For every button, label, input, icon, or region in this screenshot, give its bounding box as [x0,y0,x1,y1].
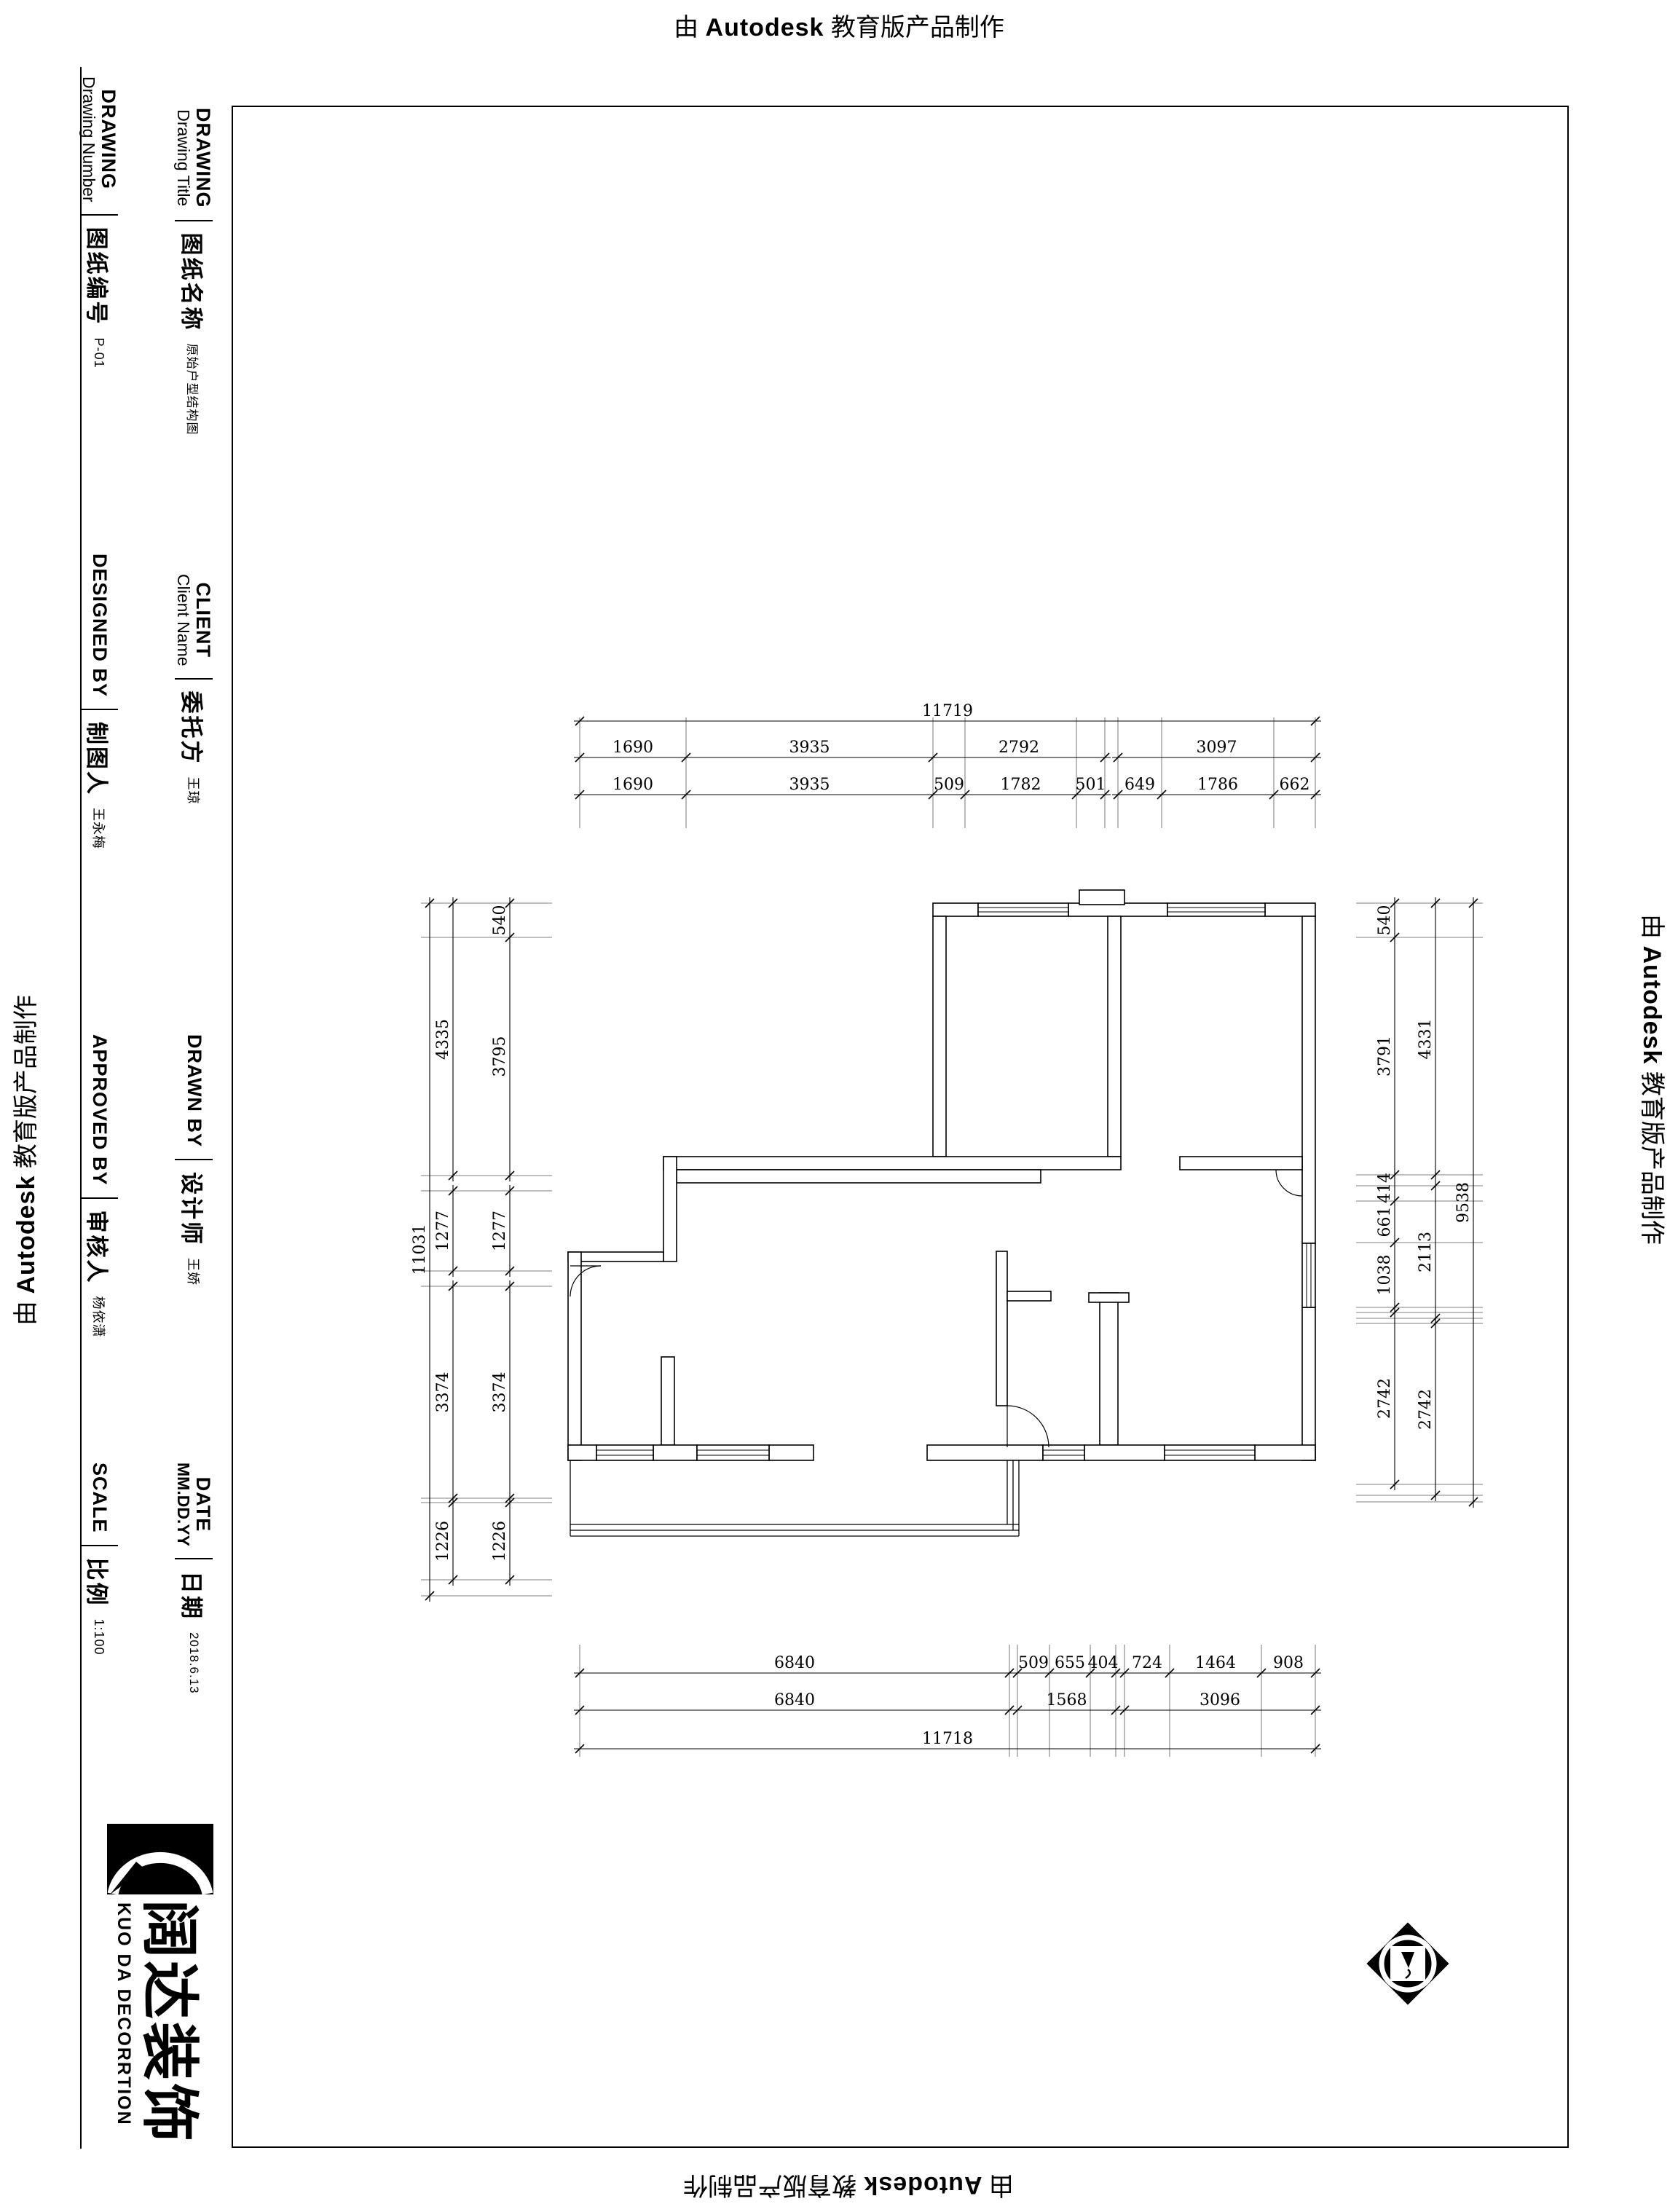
dim-label: 649 [1124,776,1155,794]
drawing-sheet: 由 Autodesk 教育版产品制作 由 Autodesk 教育版产品制作 由 … [0,0,1678,2212]
dim-label: 1226 [434,1521,452,1562]
wall [927,1445,1043,1460]
dim-label: 1277 [491,1211,509,1251]
dim-label: 540 [491,905,509,936]
dim-label: 662 [1280,776,1310,794]
dim-label: 3935 [789,776,830,794]
wall [568,1445,596,1460]
door-swing [1276,1170,1302,1196]
dim-label: 11719 [922,702,973,720]
wall [1302,1307,1315,1460]
wall [568,1252,581,1460]
window-symbol [1167,903,1265,916]
wall [677,1170,1041,1183]
dim-label: 6840 [774,1691,815,1709]
dim-label: 11718 [922,1730,973,1748]
wall [1084,1445,1165,1460]
window-symbol [596,1445,653,1460]
window-symbol [1302,1243,1315,1307]
dim-label: 661 [1376,1207,1394,1237]
dim-label: 509 [1018,1654,1049,1672]
door-swing [1007,1406,1049,1447]
dim-label: 2742 [1376,1378,1394,1419]
floor-plan: 1171916903935279230971690393550917825016… [0,0,1678,2212]
dim-label: 1690 [612,776,653,794]
dim-label: 509 [934,776,964,794]
wall [933,903,978,916]
north-arrow-icon [1363,1918,1453,2009]
dim-label: 1786 [1197,776,1238,794]
wall [1100,1293,1118,1445]
dim-label: 3795 [491,1036,509,1077]
dim-label: 2113 [1417,1232,1435,1272]
dim-label: 724 [1132,1654,1162,1672]
wall [1108,916,1121,1157]
wall [933,916,946,1157]
wall [663,1157,677,1262]
dim-label: 3374 [434,1372,452,1413]
dim-label: 3374 [491,1372,509,1413]
wall [1089,1293,1129,1302]
dim-label: 3097 [1197,739,1237,757]
balcony-rail [570,1460,1019,1536]
wall [1265,903,1315,916]
wall [1180,1157,1302,1170]
dim-label: 1038 [1376,1255,1394,1296]
window-symbol [1043,1445,1084,1460]
dim-label: 3791 [1376,1036,1394,1077]
dim-label: 9538 [1454,1182,1473,1223]
dim-label: 501 [1076,776,1106,794]
dim-label: 3935 [789,739,830,757]
dim-label: 655 [1055,1654,1085,1672]
dim-label: 4335 [434,1019,452,1060]
dim-label: 540 [1376,905,1394,936]
wall [1007,1291,1051,1301]
dim-label: 1464 [1195,1654,1236,1672]
dim-label: 414 [1376,1173,1394,1203]
dim-label: 404 [1088,1654,1119,1672]
window-symbol [1165,1445,1255,1460]
wall [568,1252,663,1262]
window-symbol [978,903,1068,916]
dim-label: 1690 [612,739,653,757]
dim-label: 1277 [434,1211,452,1251]
dim-label: 2792 [998,739,1039,757]
dim-label: 4331 [1417,1019,1435,1060]
wall [1079,890,1124,905]
wall [996,1251,1007,1406]
wall [653,1445,697,1460]
dim-label: 908 [1273,1654,1304,1672]
dim-label: 6840 [774,1654,815,1672]
window-symbol [697,1445,769,1460]
dim-label: 1226 [491,1521,509,1562]
wall [1302,916,1315,1243]
dim-label: 2742 [1417,1389,1435,1430]
wall [769,1445,814,1460]
dim-label: 1782 [1001,776,1041,794]
wall [661,1357,674,1445]
wall [1255,1445,1315,1460]
dim-label: 1568 [1047,1691,1087,1709]
dim-label: 11031 [411,1224,429,1275]
dim-label: 3096 [1200,1691,1240,1709]
wall [663,1157,1121,1170]
